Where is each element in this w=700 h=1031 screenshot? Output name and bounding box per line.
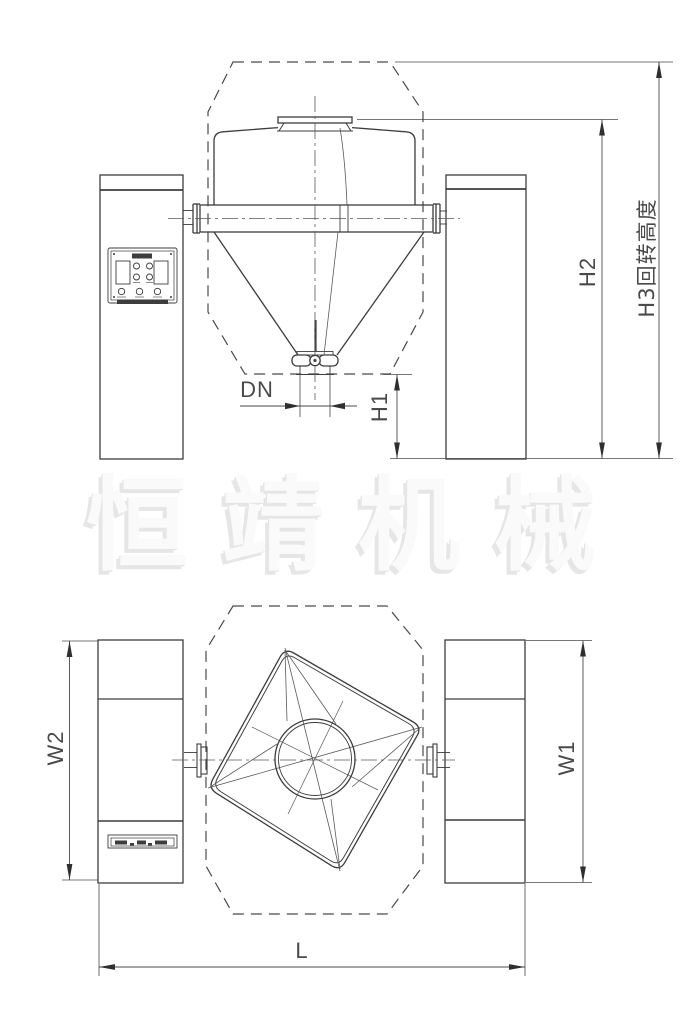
panel-indicator [136, 288, 142, 294]
rim-outer [211, 651, 419, 868]
nameplate [108, 835, 177, 848]
dim-label-h3: H3回转高度 [631, 198, 661, 317]
control-panel [108, 248, 177, 304]
panel-knob [147, 274, 153, 280]
front-elevation [100, 62, 526, 459]
panel-knob [134, 263, 140, 269]
panel-left-button [116, 261, 130, 284]
dim-label-dn: DN [240, 377, 274, 403]
dim-label-w1: W1 [554, 741, 580, 776]
panel-label-strip [117, 300, 168, 305]
dim-label-h1: H1 [367, 392, 393, 422]
panel-title-plate [132, 254, 152, 259]
panel-indicator [154, 288, 160, 294]
mixer-technical-drawing [0, 0, 700, 1031]
panel-knob [147, 263, 153, 269]
dim-label-w2: W2 [43, 731, 69, 766]
vessel-seam [340, 128, 347, 205]
side-right-column [445, 640, 525, 883]
left-support-column [100, 175, 183, 459]
dim-label-h2: H2 [575, 257, 601, 287]
panel-indicator [118, 288, 124, 294]
dim-label-l: L [295, 938, 308, 964]
mixer-vessel [214, 117, 415, 205]
side-left-column [98, 640, 183, 883]
panel-knob [134, 274, 140, 280]
side-dimensions [62, 641, 592, 977]
cone-body-end-view [208, 648, 422, 871]
right-support-column [446, 175, 526, 459]
discharge-cone [214, 232, 424, 355]
engineering-drawing-canvas: 恒靖机械 [0, 0, 700, 1031]
panel-right-button [154, 261, 168, 284]
front-dimensions [240, 62, 673, 459]
side-elevation [98, 606, 525, 914]
front-centerlines [168, 96, 460, 400]
